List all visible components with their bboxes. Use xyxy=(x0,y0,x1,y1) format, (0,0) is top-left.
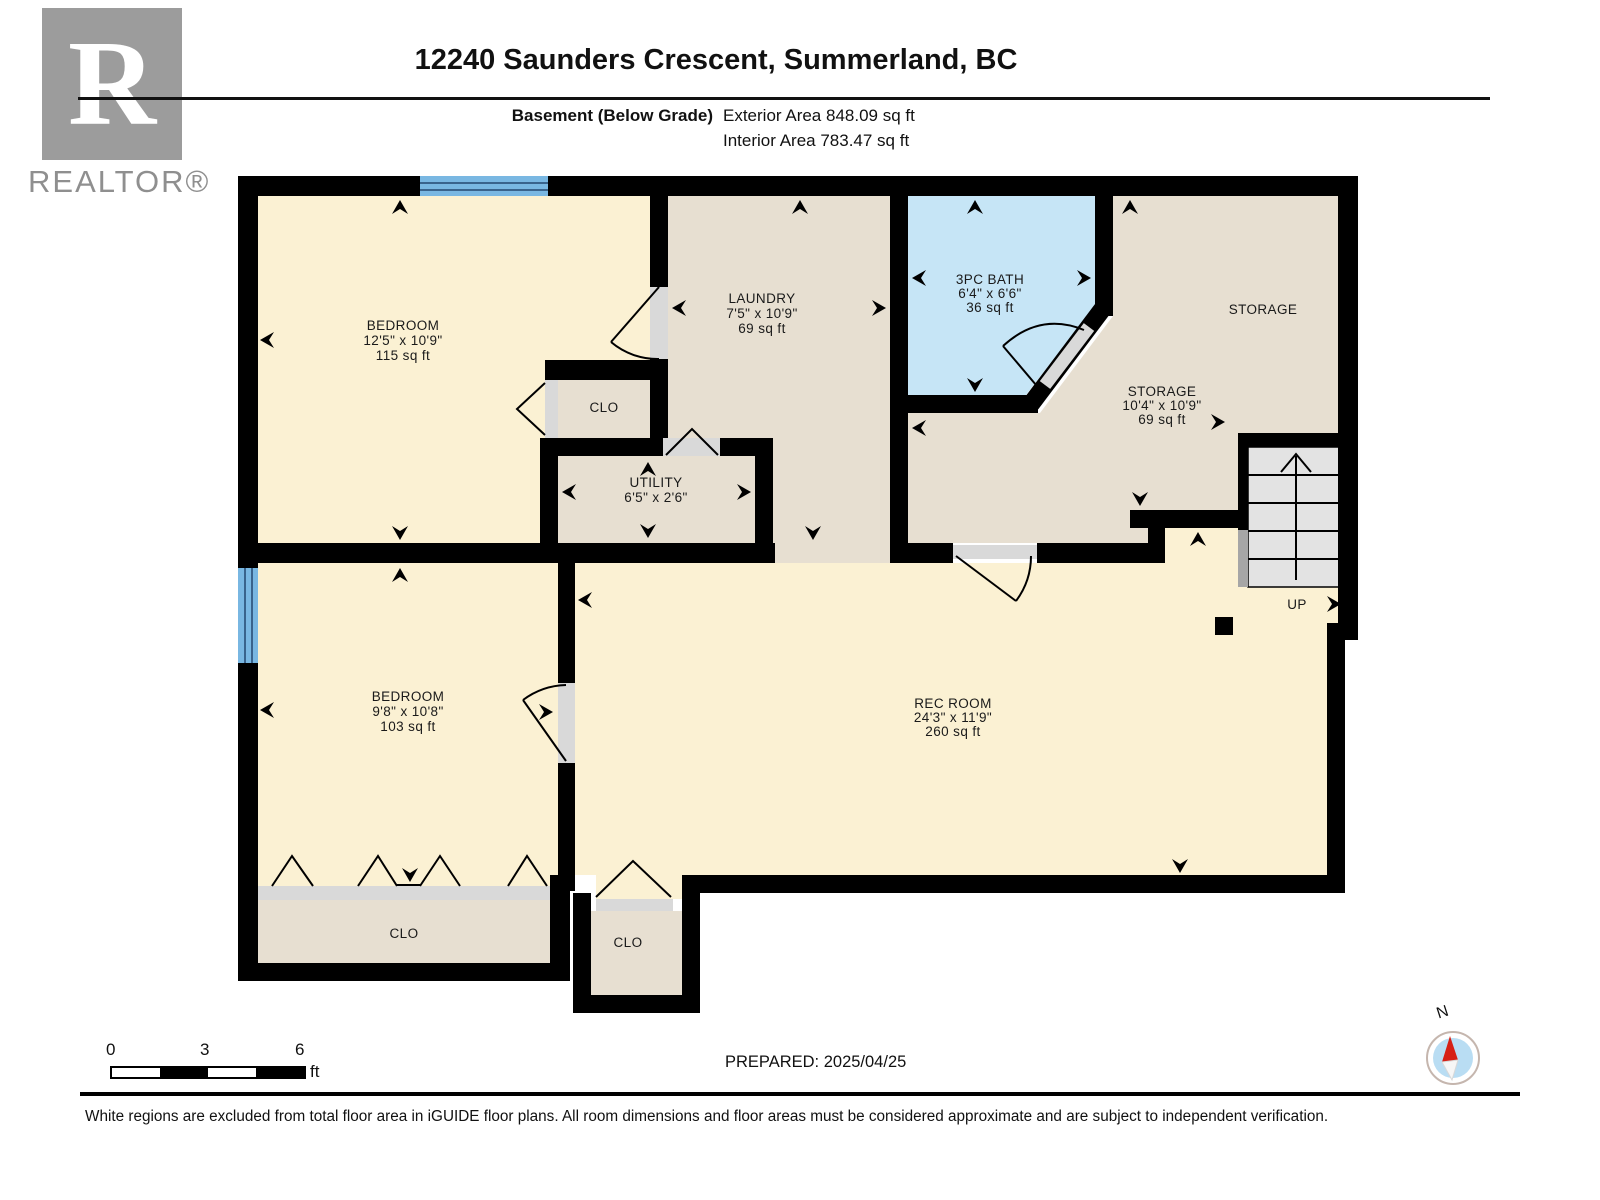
svg-text:69 sq ft: 69 sq ft xyxy=(1138,412,1185,427)
stairs-up-label: UP xyxy=(1287,597,1307,612)
floor-plan: BEDROOM 12'5" x 10'9" 115 sq ft LAUNDRY … xyxy=(230,165,1370,1025)
compass-icon xyxy=(1425,1030,1481,1086)
svg-text:9'8" x 10'8": 9'8" x 10'8" xyxy=(372,704,443,719)
svg-text:115 sq ft: 115 sq ft xyxy=(376,348,430,363)
svg-text:UTILITY: UTILITY xyxy=(629,475,682,490)
svg-text:36 sq ft: 36 sq ft xyxy=(966,300,1013,315)
compass-north-label: N xyxy=(1435,1003,1452,1024)
svg-text:REC ROOM: REC ROOM xyxy=(914,696,991,711)
title-divider xyxy=(78,97,1490,100)
svg-text:24'3" x 11'9": 24'3" x 11'9" xyxy=(914,710,992,725)
window-top xyxy=(420,176,548,196)
interior-area: Interior Area 783.47 sq ft xyxy=(723,131,909,151)
room-label-closet-bedroom2: CLO xyxy=(390,926,419,941)
room-label-utility: UTILITY 6'5" x 2'6" xyxy=(624,475,687,505)
footer-divider xyxy=(80,1092,1520,1096)
room-label-bedroom2: BEDROOM 9'8" x 10'8" 103 sq ft xyxy=(372,689,445,734)
scale-unit: ft xyxy=(310,1062,319,1082)
svg-text:LAUNDRY: LAUNDRY xyxy=(728,291,795,306)
floor-label: Basement (Below Grade) xyxy=(420,106,713,126)
room-label-rec-room: REC ROOM 24'3" x 11'9" 260 sq ft xyxy=(914,696,992,739)
realtor-logo: R xyxy=(42,8,182,160)
room-label-closet-rec: CLO xyxy=(614,935,643,950)
svg-text:BEDROOM: BEDROOM xyxy=(367,318,440,333)
scale-tick-0: 0 xyxy=(106,1040,115,1060)
svg-text:BEDROOM: BEDROOM xyxy=(372,689,445,704)
svg-text:12'5" x 10'9": 12'5" x 10'9" xyxy=(363,333,442,348)
staircase xyxy=(1238,447,1343,587)
svg-text:STORAGE: STORAGE xyxy=(1128,384,1197,399)
svg-text:103 sq ft: 103 sq ft xyxy=(380,719,435,734)
realtor-logo-letter: R xyxy=(68,23,156,145)
svg-text:6'4" x 6'6": 6'4" x 6'6" xyxy=(958,286,1021,301)
scale-tick-6: 6 xyxy=(295,1040,304,1060)
svg-text:10'4" x 10'9": 10'4" x 10'9" xyxy=(1122,398,1201,413)
scale-tick-3: 3 xyxy=(200,1040,209,1060)
post xyxy=(1215,617,1233,635)
room-label-storage-main: STORAGE xyxy=(1229,302,1298,317)
realtor-wordmark: REALTOR® xyxy=(28,164,228,200)
svg-text:260 sq ft: 260 sq ft xyxy=(925,724,980,739)
scale-bar xyxy=(110,1066,306,1079)
svg-text:69 sq ft: 69 sq ft xyxy=(738,321,785,336)
window-left xyxy=(238,568,258,663)
footer-disclaimer: White regions are excluded from total fl… xyxy=(85,1108,1545,1126)
room-label-closet-hall: CLO xyxy=(590,400,619,415)
svg-text:6'5" x 2'6": 6'5" x 2'6" xyxy=(624,490,687,505)
svg-text:7'5" x 10'9": 7'5" x 10'9" xyxy=(726,306,797,321)
page-title: 12240 Saunders Crescent, Summerland, BC xyxy=(0,44,1432,77)
exterior-area: Exterior Area 848.09 sq ft xyxy=(723,106,915,126)
svg-text:3PC BATH: 3PC BATH xyxy=(956,272,1024,287)
prepared-date: PREPARED: 2025/04/25 xyxy=(725,1053,906,1072)
